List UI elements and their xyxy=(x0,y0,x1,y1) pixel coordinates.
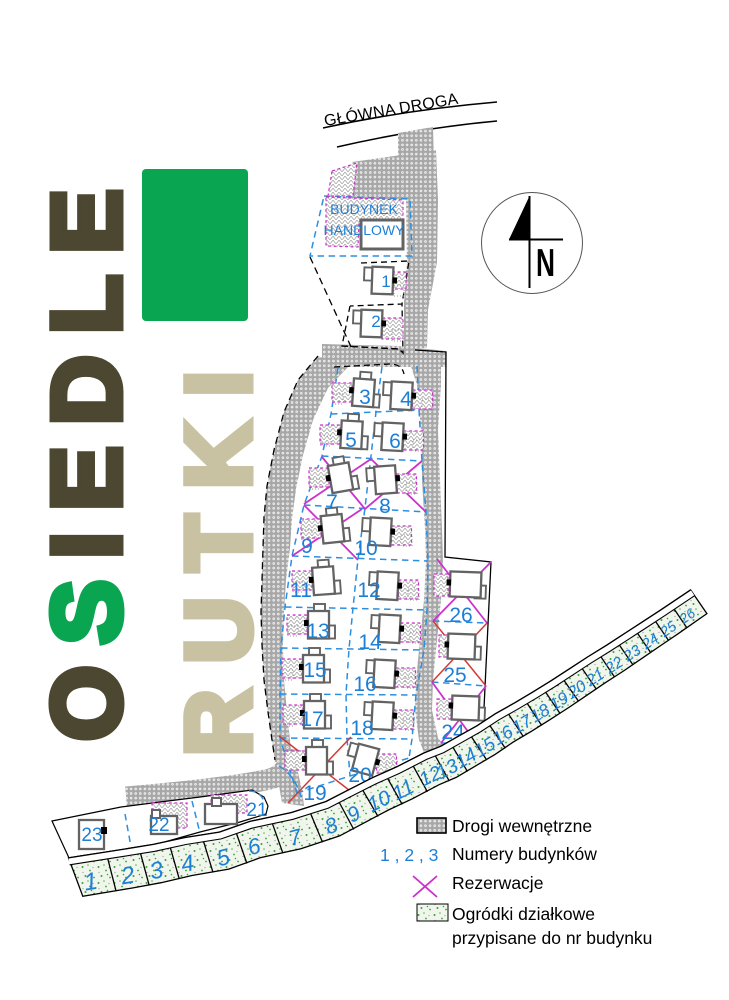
svg-text:2: 2 xyxy=(371,312,380,331)
svg-text:przypisane do nr budynku: przypisane do nr budynku xyxy=(452,928,652,948)
svg-text:13: 13 xyxy=(306,620,329,643)
svg-text:11: 11 xyxy=(290,579,312,602)
svg-text:7: 7 xyxy=(326,491,338,514)
svg-text:1 , 2 , 3: 1 , 2 , 3 xyxy=(380,845,438,865)
svg-text:23: 23 xyxy=(81,825,102,846)
svg-text:N: N xyxy=(536,242,555,285)
svg-text:RUTKI: RUTKI xyxy=(168,345,270,756)
svg-text:1: 1 xyxy=(381,272,390,291)
svg-text:16: 16 xyxy=(353,673,376,696)
svg-text:18: 18 xyxy=(350,717,373,740)
svg-text:8: 8 xyxy=(379,495,391,518)
svg-text:14: 14 xyxy=(358,631,382,654)
svg-text:3: 3 xyxy=(359,386,371,409)
svg-text:12: 12 xyxy=(357,579,380,602)
svg-text:26: 26 xyxy=(449,604,472,627)
svg-text:15: 15 xyxy=(303,659,326,682)
svg-text:9: 9 xyxy=(301,535,313,558)
svg-text:10: 10 xyxy=(354,537,377,560)
svg-text:Drogi wewnętrzne: Drogi wewnętrzne xyxy=(452,816,592,836)
svg-text:4: 4 xyxy=(400,388,412,411)
svg-text:25: 25 xyxy=(443,664,466,687)
svg-text:17: 17 xyxy=(300,708,323,731)
svg-text:6: 6 xyxy=(389,430,401,453)
svg-text:22: 22 xyxy=(148,815,169,836)
svg-text:HANDLOWY: HANDLOWY xyxy=(324,222,406,238)
svg-text:Rezerwacje: Rezerwacje xyxy=(452,873,543,893)
svg-text:Numery budynków: Numery budynków xyxy=(452,844,597,864)
svg-text:19: 19 xyxy=(303,782,326,805)
svg-text:Ogródki działkowe: Ogródki działkowe xyxy=(452,904,595,924)
svg-text:OSIEDLE: OSIEDLE xyxy=(32,168,141,741)
svg-text:5: 5 xyxy=(345,429,357,452)
svg-text:BUDYNEK: BUDYNEK xyxy=(330,201,398,217)
